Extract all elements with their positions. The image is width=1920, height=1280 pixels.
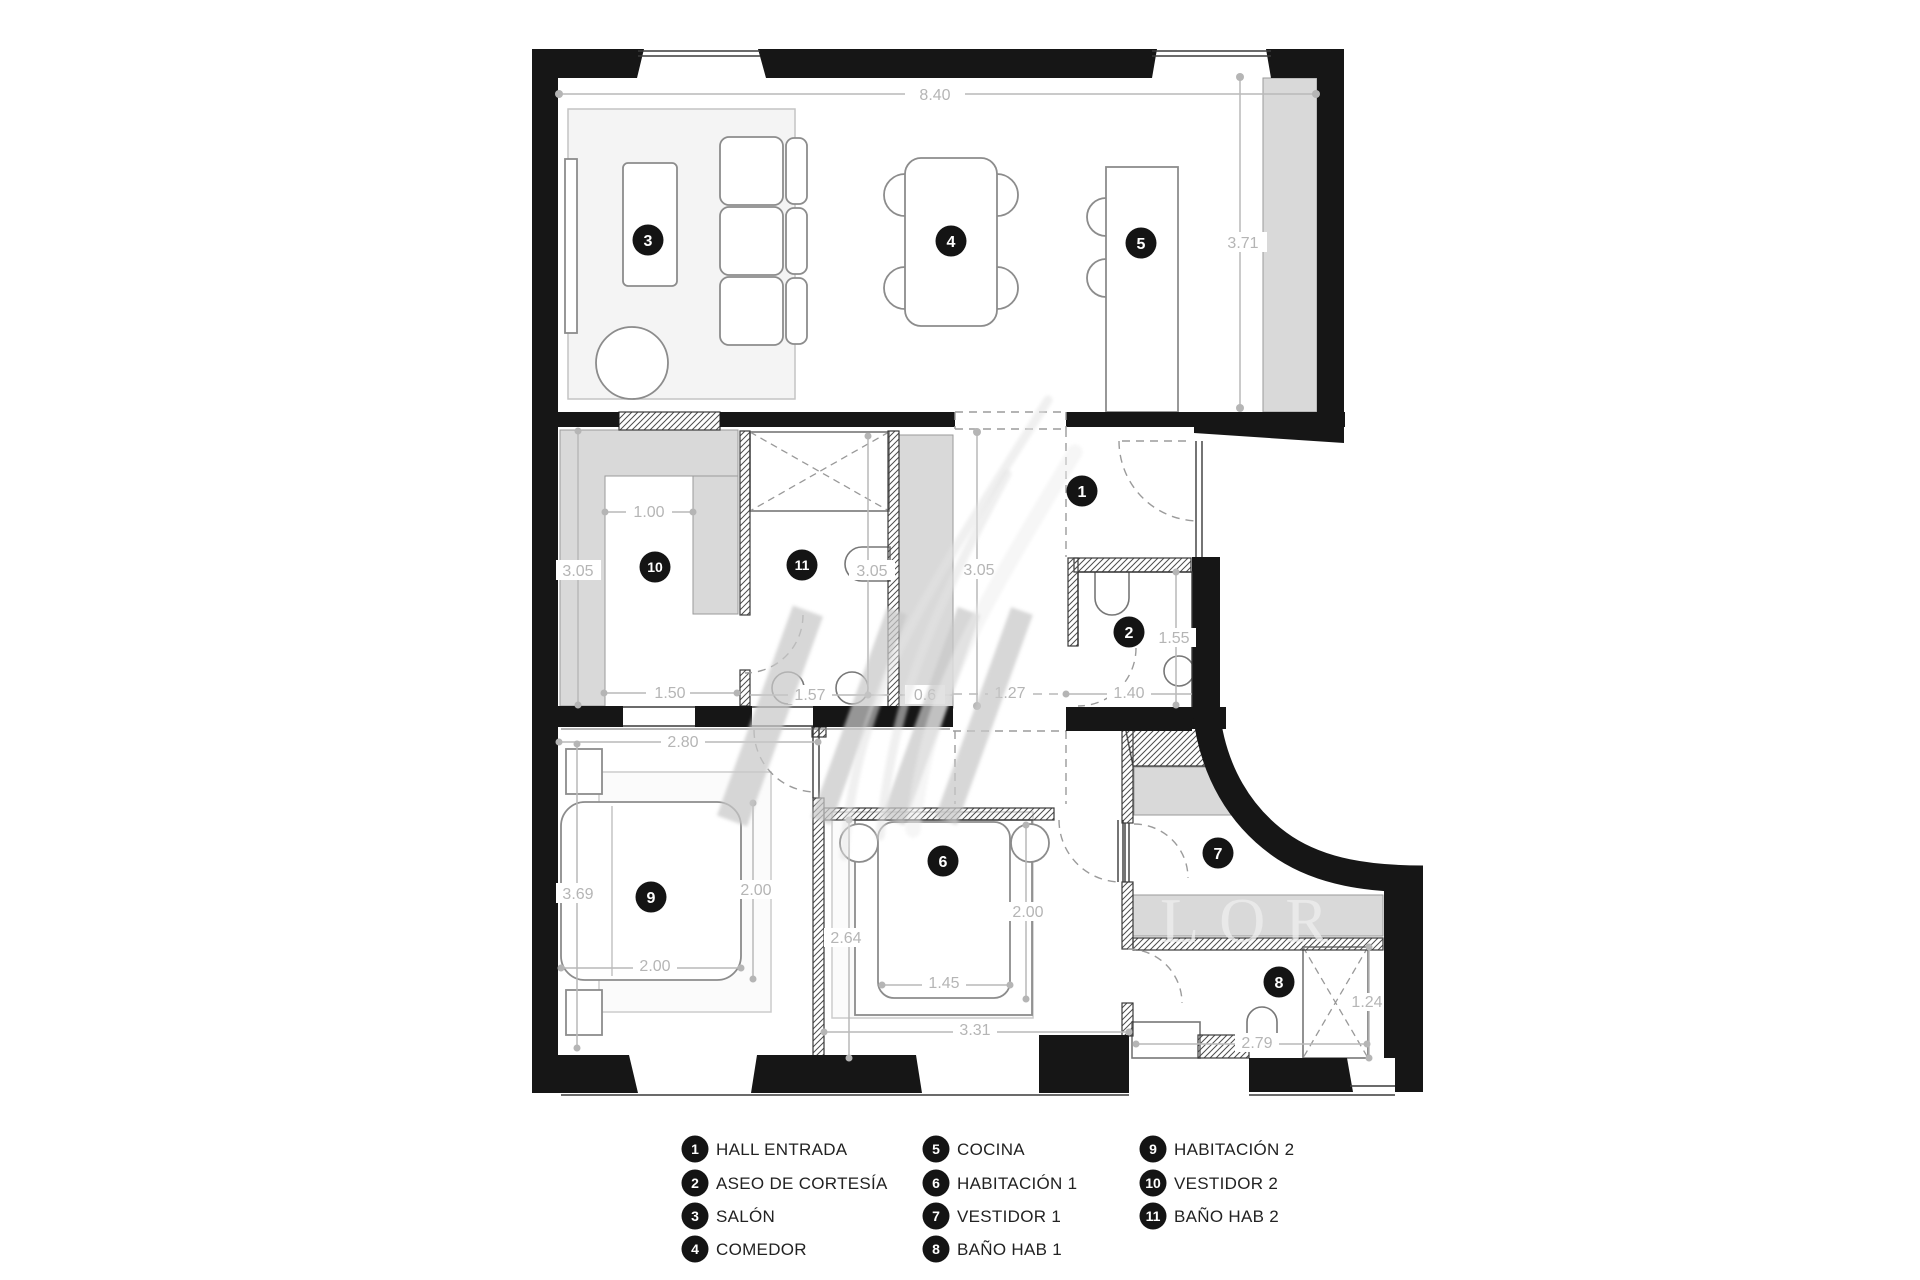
svg-text:2.79: 2.79 bbox=[1241, 1035, 1272, 1052]
svg-text:8: 8 bbox=[932, 1241, 940, 1257]
svg-text:9: 9 bbox=[647, 890, 656, 907]
svg-text:1.00: 1.00 bbox=[633, 504, 664, 521]
svg-text:2.00: 2.00 bbox=[740, 882, 771, 899]
svg-text:3.31: 3.31 bbox=[959, 1022, 990, 1039]
svg-text:4: 4 bbox=[691, 1241, 699, 1257]
svg-text:5: 5 bbox=[932, 1141, 940, 1157]
svg-text:8: 8 bbox=[1275, 975, 1284, 992]
svg-text:3.71: 3.71 bbox=[1227, 235, 1258, 252]
svg-text:3: 3 bbox=[644, 233, 653, 250]
svg-text:11: 11 bbox=[795, 557, 810, 573]
svg-text:BAÑO HAB 2: BAÑO HAB 2 bbox=[1174, 1207, 1279, 1226]
svg-text:7: 7 bbox=[932, 1208, 940, 1224]
svg-text:7: 7 bbox=[1214, 846, 1223, 863]
svg-text:COMEDOR: COMEDOR bbox=[716, 1240, 807, 1259]
svg-text:8.40: 8.40 bbox=[919, 87, 950, 104]
svg-text:5: 5 bbox=[1137, 236, 1146, 253]
svg-text:1.55: 1.55 bbox=[1158, 630, 1189, 647]
svg-text:11: 11 bbox=[1146, 1208, 1161, 1224]
svg-text:LOR: LOR bbox=[1160, 885, 1348, 956]
svg-text:1: 1 bbox=[691, 1141, 699, 1157]
svg-text:ASEO DE CORTESÍA: ASEO DE CORTESÍA bbox=[716, 1174, 888, 1193]
svg-text:4: 4 bbox=[947, 234, 956, 251]
svg-text:1.40: 1.40 bbox=[1113, 685, 1144, 702]
svg-text:10: 10 bbox=[1145, 1175, 1161, 1191]
svg-text:1: 1 bbox=[1078, 484, 1087, 501]
svg-text:VESTIDOR 2: VESTIDOR 2 bbox=[1174, 1174, 1278, 1193]
svg-text:2: 2 bbox=[691, 1175, 699, 1191]
svg-text:2.64: 2.64 bbox=[830, 930, 861, 947]
svg-text:6: 6 bbox=[932, 1175, 940, 1191]
svg-text:HALL ENTRADA: HALL ENTRADA bbox=[716, 1140, 848, 1159]
svg-text:2.00: 2.00 bbox=[639, 958, 670, 975]
svg-text:2: 2 bbox=[1125, 625, 1134, 642]
svg-text:SALÓN: SALÓN bbox=[716, 1207, 775, 1226]
svg-text:2.80: 2.80 bbox=[667, 734, 698, 751]
svg-text:1.45: 1.45 bbox=[928, 975, 959, 992]
svg-text:1.57: 1.57 bbox=[794, 687, 825, 704]
svg-text:3.69: 3.69 bbox=[562, 886, 593, 903]
svg-text:3.05: 3.05 bbox=[562, 563, 593, 580]
svg-text:6: 6 bbox=[939, 854, 948, 871]
svg-text:3.05: 3.05 bbox=[856, 563, 887, 580]
svg-text:1.24: 1.24 bbox=[1351, 994, 1382, 1011]
svg-text:VESTIDOR 1: VESTIDOR 1 bbox=[957, 1207, 1061, 1226]
svg-text:9: 9 bbox=[1149, 1141, 1157, 1157]
svg-text:3.05: 3.05 bbox=[963, 562, 994, 579]
svg-text:3: 3 bbox=[691, 1208, 699, 1224]
svg-text:HABITACIÓN 2: HABITACIÓN 2 bbox=[1174, 1140, 1294, 1159]
svg-text:BAÑO HAB 1: BAÑO HAB 1 bbox=[957, 1240, 1062, 1259]
svg-text:HABITACIÓN 1: HABITACIÓN 1 bbox=[957, 1174, 1077, 1193]
svg-text:2.00: 2.00 bbox=[1012, 904, 1043, 921]
svg-text:1.50: 1.50 bbox=[654, 685, 685, 702]
svg-text:COCINA: COCINA bbox=[957, 1140, 1025, 1159]
svg-text:10: 10 bbox=[647, 559, 663, 575]
